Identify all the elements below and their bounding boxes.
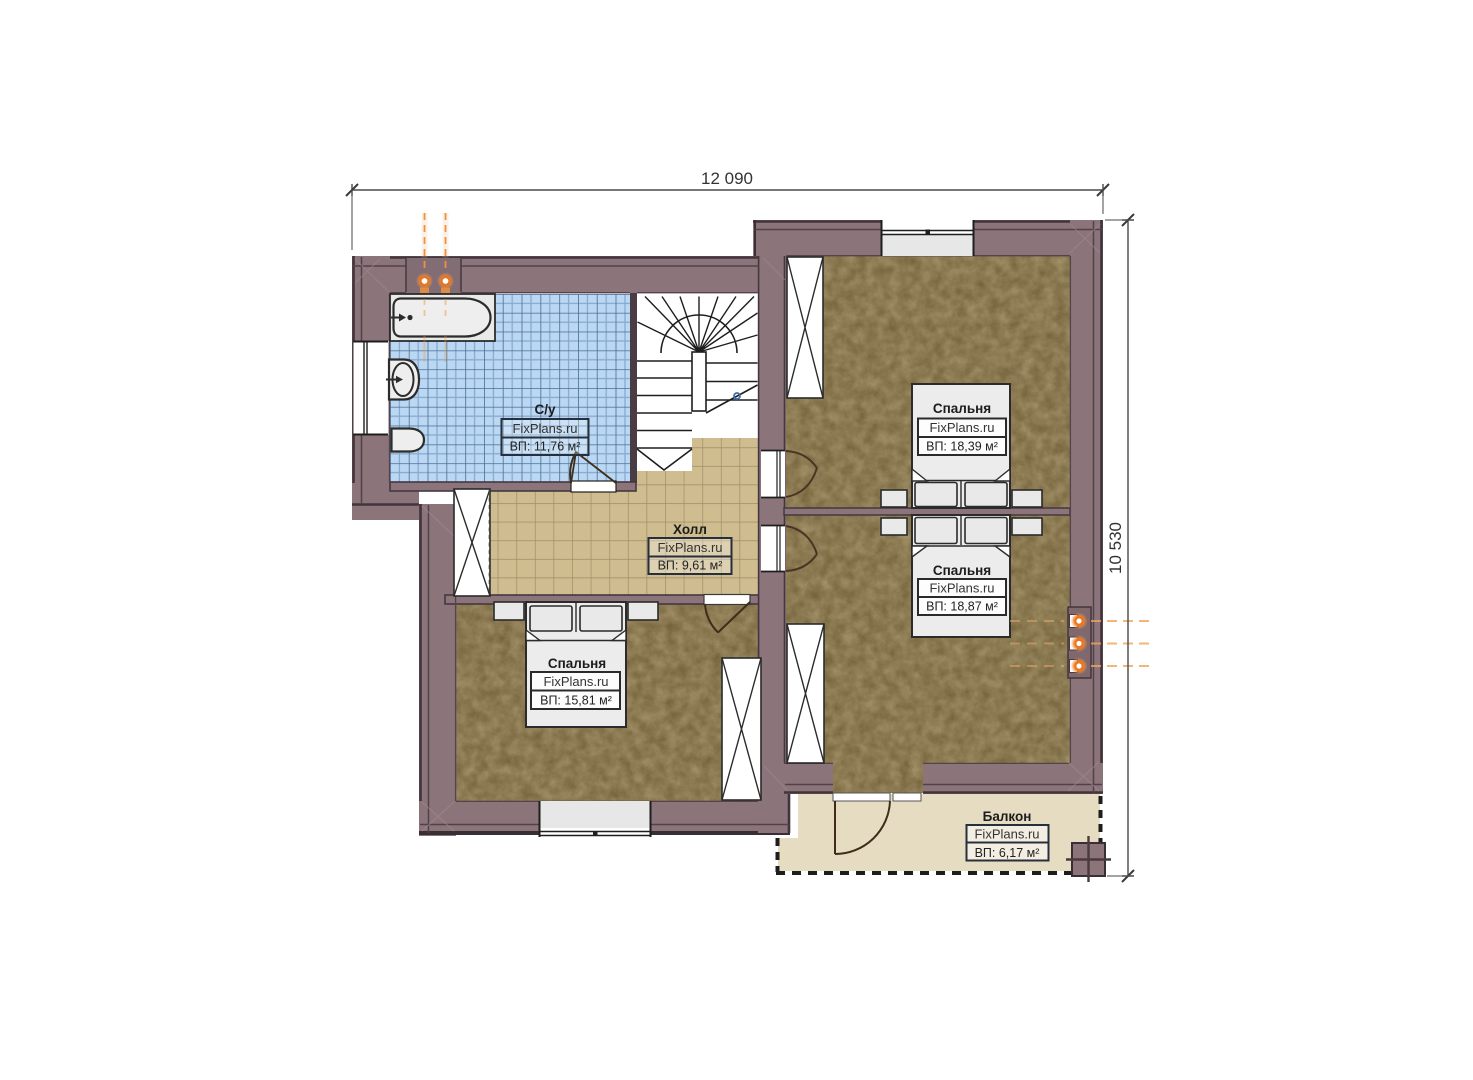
svg-text:ВП: 6,17 м²: ВП: 6,17 м² bbox=[975, 846, 1040, 860]
svg-text:ВП: 18,87 м²: ВП: 18,87 м² bbox=[926, 600, 998, 614]
svg-text:10 530: 10 530 bbox=[1106, 522, 1125, 574]
svg-text:FixPlans.ru: FixPlans.ru bbox=[929, 420, 994, 435]
svg-text:FixPlans.ru: FixPlans.ru bbox=[657, 540, 722, 555]
svg-text:С/у: С/у bbox=[534, 402, 556, 417]
svg-text:Спальня: Спальня bbox=[933, 401, 991, 416]
svg-text:Балкон: Балкон bbox=[983, 809, 1032, 824]
svg-text:FixPlans.ru: FixPlans.ru bbox=[512, 421, 577, 436]
svg-text:Холл: Холл bbox=[673, 522, 707, 537]
svg-text:ВП: 18,39 м²: ВП: 18,39 м² bbox=[926, 440, 998, 454]
svg-text:ВП: 11,76 м²: ВП: 11,76 м² bbox=[510, 440, 581, 454]
svg-text:12 090: 12 090 bbox=[701, 169, 753, 188]
svg-text:ВП: 15,81 м²: ВП: 15,81 м² bbox=[540, 694, 612, 708]
svg-text:Спальня: Спальня bbox=[548, 656, 606, 671]
svg-text:FixPlans.ru: FixPlans.ru bbox=[974, 827, 1039, 842]
svg-text:Спальня: Спальня bbox=[933, 563, 991, 578]
svg-text:FixPlans.ru: FixPlans.ru bbox=[543, 674, 608, 689]
svg-text:ВП: 9,61 м²: ВП: 9,61 м² bbox=[658, 559, 723, 573]
svg-text:FixPlans.ru: FixPlans.ru bbox=[929, 581, 994, 596]
